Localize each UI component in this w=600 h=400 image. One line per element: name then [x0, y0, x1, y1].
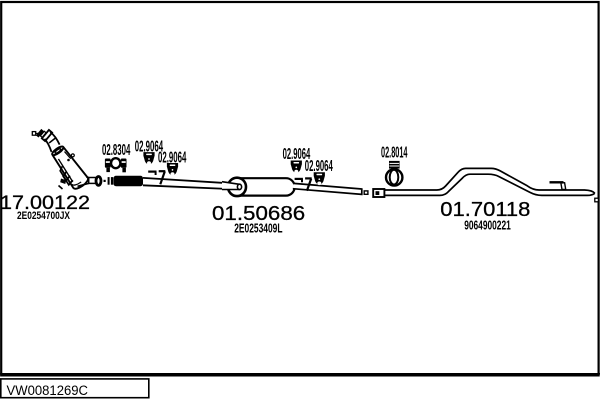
svg-text:02.8304: 02.8304 — [102, 142, 130, 159]
svg-text:9064900221: 9064900221 — [464, 218, 511, 232]
svg-text:2E0254700JX: 2E0254700JX — [17, 210, 71, 222]
svg-text:VW0081269C: VW0081269C — [7, 383, 89, 399]
svg-text:2E0253409L: 2E0253409L — [234, 220, 282, 235]
svg-text:02.8014: 02.8014 — [381, 145, 408, 162]
